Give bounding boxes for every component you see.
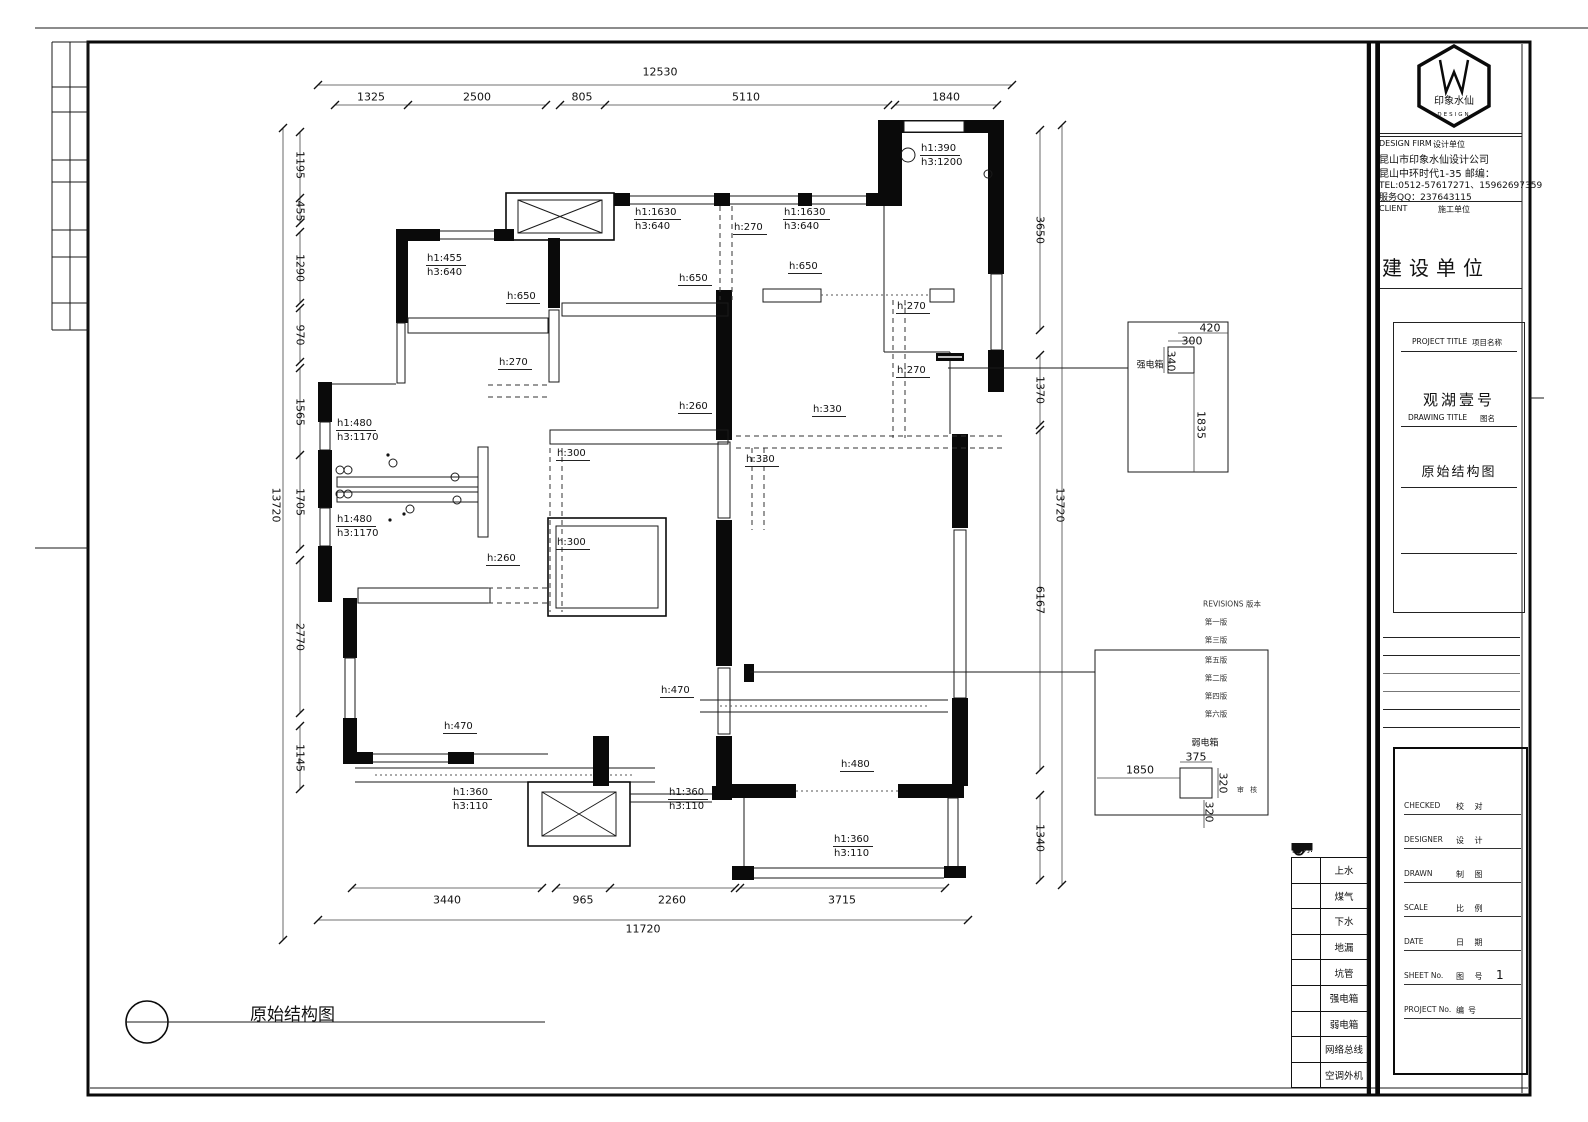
- height-annotation-line: h3:110: [452, 800, 492, 813]
- client-value: 建设单位: [1382, 252, 1490, 281]
- row-label-cn: 设 计: [1456, 835, 1487, 846]
- dimension-label: 420: [1200, 322, 1221, 335]
- height-annotation-line: h3:640: [783, 220, 830, 233]
- height-annotation: h:270: [896, 364, 930, 378]
- height-annotation-line: h:270: [896, 300, 930, 314]
- company-name: 昆山市印象水仙设计公司: [1379, 151, 1489, 166]
- client-cn: 施工单位: [1438, 204, 1470, 215]
- dimension-label: 11720: [626, 923, 661, 936]
- height-annotation: h:650: [788, 260, 822, 274]
- height-annotation-line: h1:360: [833, 833, 873, 847]
- project-title-label: PROJECT TITLE: [1412, 337, 1467, 346]
- height-annotation-line: h3:110: [833, 847, 873, 860]
- logo-name-text: 印象水仙: [1434, 94, 1474, 107]
- height-annotation-line: h3:1170: [336, 431, 379, 444]
- dimension-label: 1325: [357, 91, 385, 104]
- drawing-title-value: 原始结构图: [1394, 461, 1524, 480]
- height-annotation-line: h3:640: [634, 220, 681, 233]
- height-annotation-line: h:330: [745, 453, 779, 467]
- height-annotation: h:260: [678, 400, 712, 414]
- company-logo: 印象水仙 DESIGN: [1368, 42, 1530, 134]
- height-annotation-line: h3:640: [426, 266, 466, 279]
- dimension-label: 320: [1203, 802, 1216, 823]
- row-label-en: DATE: [1404, 937, 1424, 946]
- circle-outline-icon: [1292, 858, 1321, 883]
- legend-label: 弱电箱: [1321, 1012, 1367, 1037]
- drawing-title-label: 原始结构图: [250, 1000, 335, 1025]
- height-annotation-line: h:300: [556, 536, 590, 550]
- height-annotation: h1:1630h3:640: [634, 206, 681, 233]
- dimension-label: 1370: [1034, 376, 1047, 404]
- dimension-label: 1840: [932, 91, 960, 104]
- row-label-en: DRAWN: [1404, 869, 1432, 878]
- dimension-label: 13720: [270, 488, 283, 523]
- title-block: 印象水仙 DESIGN DESIGN FIRM 设计单位 昆山市印象水仙设计公司…: [1368, 42, 1530, 1095]
- revision-label: 第二版: [1205, 673, 1228, 684]
- height-annotation: h1:360h3:110: [668, 786, 708, 813]
- height-annotation: h:270: [896, 300, 930, 314]
- height-annotation-line: h:260: [486, 552, 520, 566]
- row-label-cn: 制 图: [1456, 869, 1487, 880]
- dimension-label: 弱电箱: [1191, 736, 1218, 749]
- dimension-label: 455: [294, 201, 307, 222]
- legend-row: 下水: [1291, 909, 1368, 935]
- row-label-en: SHEET No.: [1404, 971, 1443, 980]
- rect-cross-icon: [1292, 1063, 1321, 1088]
- legend-row: 网络总线: [1291, 1037, 1368, 1063]
- legend-label: 煤气: [1321, 884, 1367, 909]
- legend-row: 强电箱: [1291, 986, 1368, 1012]
- height-annotation-line: h1:360: [668, 786, 708, 800]
- height-annotation-line: h:270: [733, 221, 767, 235]
- height-annotation: h:470: [660, 684, 694, 698]
- dimension-label: 805: [572, 91, 593, 104]
- height-annotation: h1:455h3:640: [426, 252, 466, 279]
- height-annotation-line: h:470: [443, 720, 477, 734]
- legend-row: 空调外机: [1291, 1063, 1368, 1089]
- dimension-label: 审 核: [1237, 785, 1259, 795]
- height-annotation-line: h3:1170: [336, 527, 379, 540]
- height-annotation: h:260: [486, 552, 520, 566]
- drawing-title-cn: 图名: [1480, 413, 1495, 424]
- height-annotation: h1:1630h3:640: [783, 206, 830, 233]
- row-label-en: PROJECT No.: [1404, 1005, 1451, 1014]
- dimension-label: 1145: [294, 744, 307, 772]
- dimension-label: 6167: [1034, 586, 1047, 614]
- height-annotation: h:470: [443, 720, 477, 734]
- title-block-row-drawn: DRAWN制 图: [1404, 865, 1521, 899]
- row-label-en: CHECKED: [1404, 801, 1440, 810]
- legend-label: 强电箱: [1321, 986, 1367, 1011]
- title-block-row-scale: SCALE比 例: [1404, 899, 1521, 933]
- title-block-row-sheet-no-: SHEET No.图 号1: [1404, 967, 1521, 1001]
- project-title-box: PROJECT TITLE 项目名称 观湖壹号 DRAWING TITLE 图名…: [1393, 322, 1525, 613]
- revision-label: 第四版: [1205, 691, 1228, 702]
- dimension-label: 1850: [1126, 764, 1154, 777]
- height-annotation-line: h:480: [840, 758, 874, 772]
- row-label-cn: 比 例: [1456, 903, 1487, 914]
- signature-box: CHECKED校 对DESIGNER设 计DRAWN制 图SCALE比 例DAT…: [1393, 747, 1528, 1075]
- row-label-cn: 图 号: [1456, 971, 1487, 982]
- dimension-label: 3715: [828, 894, 856, 907]
- revision-label: 第五版: [1205, 655, 1228, 666]
- row-label-cn: 校 对: [1456, 801, 1487, 812]
- dimension-label: 2500: [463, 91, 491, 104]
- title-block-row-date: DATE日 期: [1404, 933, 1521, 967]
- dimension-label: 12530: [643, 66, 678, 79]
- legend-label: 网络总线: [1321, 1037, 1367, 1062]
- dimension-label: 970: [294, 325, 307, 346]
- legend-row: 弱电箱: [1291, 1012, 1368, 1038]
- height-annotation: h:480: [840, 758, 874, 772]
- dimension-label: 1835: [1195, 411, 1208, 439]
- height-annotation-line: h:260: [678, 400, 712, 414]
- dimension-label: 1290: [294, 254, 307, 282]
- height-annotation-line: h:470: [660, 684, 694, 698]
- height-annotation: h:300: [556, 536, 590, 550]
- height-annotation: h:650: [678, 272, 712, 286]
- height-annotation-line: h1:480: [336, 417, 376, 431]
- row-value: 1: [1496, 968, 1504, 982]
- legend-label: 上水: [1321, 858, 1367, 883]
- dimension-label: 2260: [658, 894, 686, 907]
- height-annotation: h:270: [733, 221, 767, 235]
- height-annotation-line: h:270: [896, 364, 930, 378]
- height-annotation-line: h3:110: [668, 800, 708, 813]
- circle-filled-icon: [1292, 960, 1321, 985]
- legend-label: 空调外机: [1321, 1063, 1367, 1088]
- dimension-label: 375: [1186, 751, 1207, 764]
- height-annotation-line: h1:360: [452, 786, 492, 800]
- design-firm-cn: 设计单位: [1433, 139, 1465, 150]
- title-block-row-designer: DESIGNER设 计: [1404, 831, 1521, 865]
- design-firm-label: DESIGN FIRM: [1379, 139, 1432, 148]
- legend-row: 坑管: [1291, 960, 1368, 986]
- dimension-label: 1195: [294, 151, 307, 179]
- dimension-label: 5110: [732, 91, 760, 104]
- dimension-label: 3650: [1034, 216, 1047, 244]
- height-annotation-line: h:270: [498, 356, 532, 370]
- height-annotation-line: h:650: [506, 290, 540, 304]
- ellipse-filled-icon: [1292, 884, 1321, 909]
- legend-row: 煤气: [1291, 884, 1368, 910]
- row-label-en: SCALE: [1404, 903, 1428, 912]
- dimension-label: 1565: [294, 398, 307, 426]
- height-annotation-line: h3:1200: [920, 156, 963, 169]
- height-annotation: h:330: [745, 453, 779, 467]
- dimension-label: 1340: [1034, 824, 1047, 852]
- drawing-sheet: { "drawing_label": "原始结构图", "plan": { "d…: [0, 0, 1588, 1122]
- height-annotation: h1:360h3:110: [452, 786, 492, 813]
- title-block-row-checked: CHECKED校 对: [1404, 797, 1521, 831]
- dimension-label: 320: [1217, 773, 1230, 794]
- rect-diagonal-icon: [1292, 1037, 1321, 1062]
- dimension-label: 300: [1182, 335, 1203, 348]
- height-annotation: h:650: [506, 290, 540, 304]
- client-label: CLIENT: [1379, 204, 1407, 213]
- height-annotation-line: h:650: [788, 260, 822, 274]
- legend-label: 坑管: [1321, 960, 1367, 985]
- height-annotation: h1:480h3:1170: [336, 417, 379, 444]
- project-title-value: 观湖壹号: [1394, 389, 1524, 410]
- revision-label: 第六版: [1205, 709, 1228, 720]
- height-annotation-line: h1:480: [336, 513, 376, 527]
- circle-cross-icon: [1292, 909, 1321, 934]
- bar-filled-icon: [1292, 986, 1321, 1011]
- height-annotation: h:330: [812, 403, 846, 417]
- dimension-label: 965: [573, 894, 594, 907]
- revision-label: 第一版: [1205, 617, 1228, 628]
- height-annotation: h:300: [556, 447, 590, 461]
- legend-label: 地漏: [1321, 935, 1367, 960]
- project-title-cn: 项目名称: [1472, 337, 1502, 348]
- height-annotation-line: h1:1630: [783, 206, 830, 220]
- height-annotation-line: h1:1630: [634, 206, 681, 220]
- revision-label: 第三版: [1205, 635, 1228, 646]
- dimension-label: 13720: [1054, 488, 1067, 523]
- height-annotation-line: h1:455: [426, 252, 466, 266]
- logo-sub-text: DESIGN: [1437, 112, 1470, 118]
- dimension-label: 1705: [294, 488, 307, 516]
- legend: 图例: 上水煤气下水地漏坑管强电箱弱电箱网络总线空调外机: [1291, 842, 1368, 1088]
- height-annotation: h:270: [498, 356, 532, 370]
- height-annotation-line: h:650: [678, 272, 712, 286]
- height-annotation-line: h:330: [812, 403, 846, 417]
- dimension-label: 340: [1165, 351, 1178, 372]
- legend-row: 上水: [1291, 857, 1368, 884]
- height-annotation: h1:390h3:1200: [920, 142, 963, 169]
- height-annotation: h1:480h3:1170: [336, 513, 379, 540]
- dimension-label: 强电箱: [1136, 358, 1163, 371]
- dimension-label: 2770: [294, 623, 307, 651]
- dimension-label: 3440: [433, 894, 461, 907]
- logo-w-glyph: [1440, 60, 1468, 92]
- revision-label: REVISIONS 版本: [1203, 599, 1261, 610]
- height-annotation: h1:360h3:110: [833, 833, 873, 860]
- row-label-cn: 日 期: [1456, 937, 1487, 948]
- legend-row: 地漏: [1291, 935, 1368, 961]
- drawing-title-label-en: DRAWING TITLE: [1408, 413, 1467, 422]
- row-label-cn: 编号: [1456, 1005, 1480, 1016]
- row-label-en: DESIGNER: [1404, 835, 1443, 844]
- height-annotation-line: h1:390: [920, 142, 960, 156]
- legend-label: 下水: [1321, 909, 1367, 934]
- title-block-row-project-no-: PROJECT No.编号: [1404, 1001, 1521, 1035]
- bar-triangle-icon: [1292, 1012, 1321, 1037]
- height-annotation-line: h:300: [556, 447, 590, 461]
- square-filled-icon: [1292, 935, 1321, 960]
